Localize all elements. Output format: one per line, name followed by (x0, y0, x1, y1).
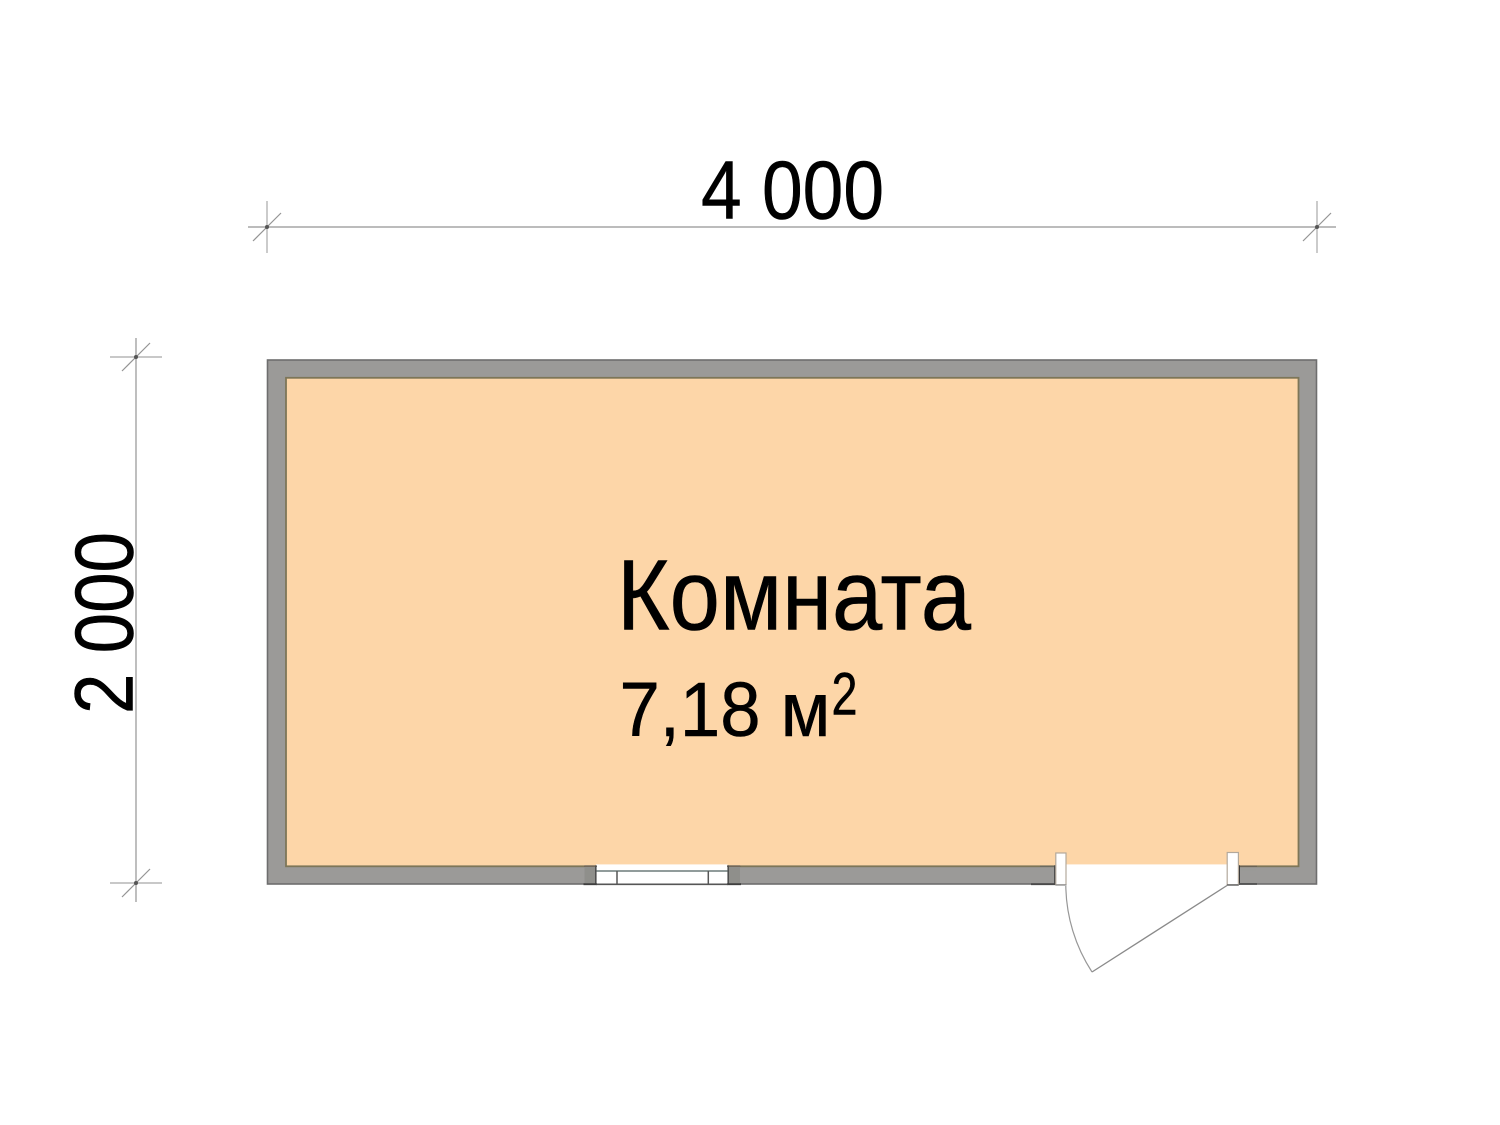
svg-text:4 000: 4 000 (701, 144, 884, 237)
svg-text:7,18 м: 7,18 м (620, 667, 831, 753)
svg-text:2 000: 2 000 (58, 532, 151, 714)
svg-text:2: 2 (832, 661, 858, 728)
svg-text:Комната: Комната (617, 540, 971, 652)
